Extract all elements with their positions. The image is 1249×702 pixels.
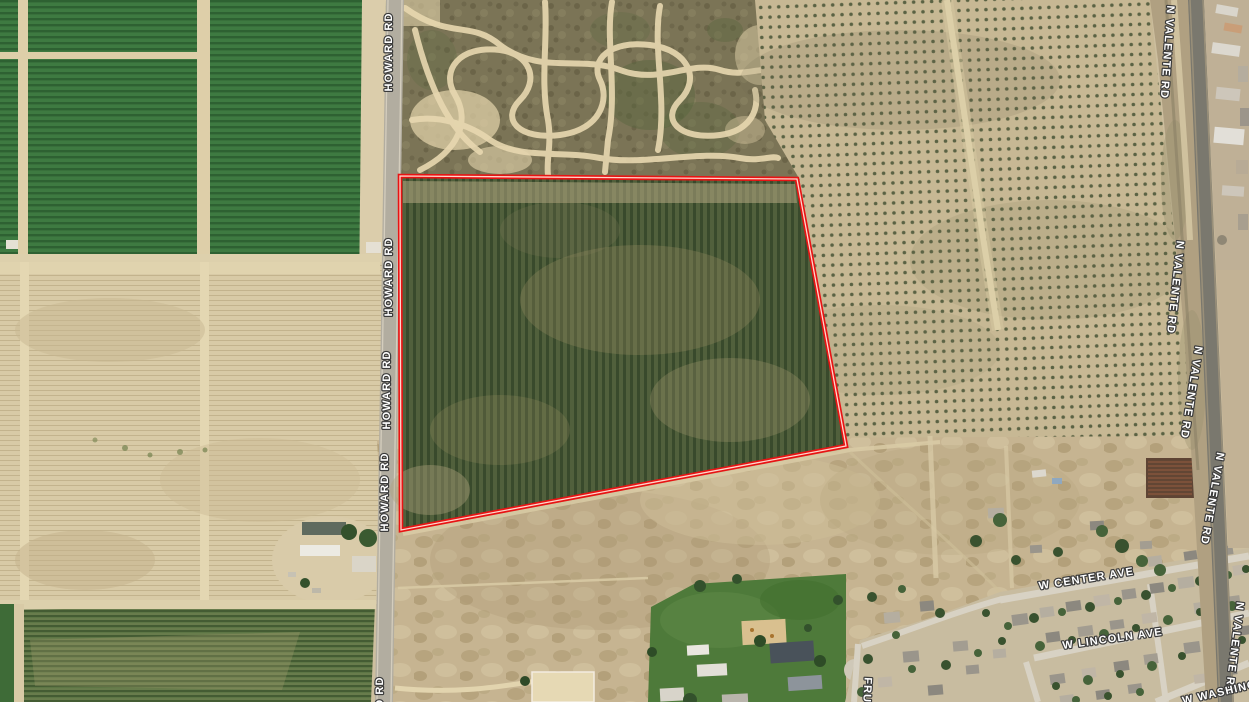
- farmland-left: [0, 0, 388, 702]
- satellite-map[interactable]: HOWARD RD HOWARD RD HOWARD RD HOWARD RD …: [0, 0, 1249, 702]
- lumber-yard: [1146, 458, 1196, 498]
- road-label-howard-rd: HOWARD RD: [381, 351, 393, 430]
- road-label-howard-rd: HOWARD RD: [383, 238, 395, 317]
- road-label-howard-rd: HOWARD RD: [379, 453, 391, 532]
- road-label-howard-rd: HOWARD RD: [383, 13, 395, 92]
- farmstead: [272, 516, 388, 604]
- offroad-trails-area: [386, 0, 800, 180]
- road-label-fruit-rd: FRU: [860, 677, 873, 702]
- road-label-howard-rd: HOWARD RD: [374, 677, 386, 702]
